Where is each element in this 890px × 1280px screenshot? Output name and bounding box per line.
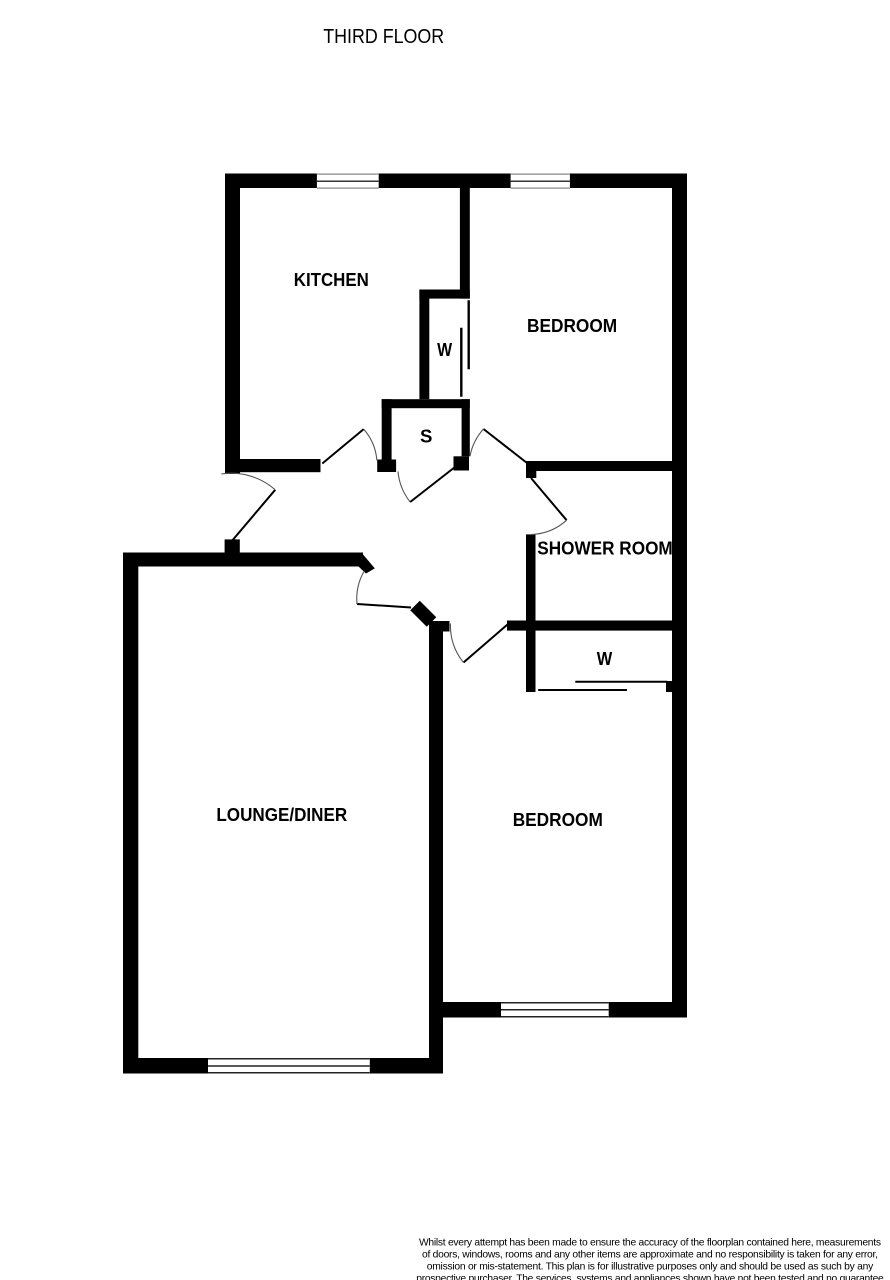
svg-text:BEDROOM: BEDROOM — [527, 315, 617, 336]
svg-text:omission or mis-statement. Thi: omission or mis-statement. This plan is … — [427, 1262, 874, 1273]
svg-text:Whilst every attempt has been: Whilst every attempt has been made to en… — [419, 1237, 881, 1248]
svg-text:of doors, windows, rooms and a: of doors, windows, rooms and any other i… — [422, 1249, 878, 1260]
svg-text:S: S — [420, 425, 432, 446]
svg-text:SHOWER ROOM: SHOWER ROOM — [537, 537, 673, 558]
svg-text:LOUNGE/DINER: LOUNGE/DINER — [216, 804, 347, 825]
svg-text:W: W — [437, 339, 452, 360]
svg-text:KITCHEN: KITCHEN — [294, 269, 369, 290]
svg-text:THIRD FLOOR: THIRD FLOOR — [323, 25, 444, 48]
svg-text:BEDROOM: BEDROOM — [513, 809, 603, 830]
svg-text:prospective purchaser. The ser: prospective purchaser. The services, sys… — [416, 1274, 884, 1280]
svg-text:W: W — [597, 648, 613, 669]
